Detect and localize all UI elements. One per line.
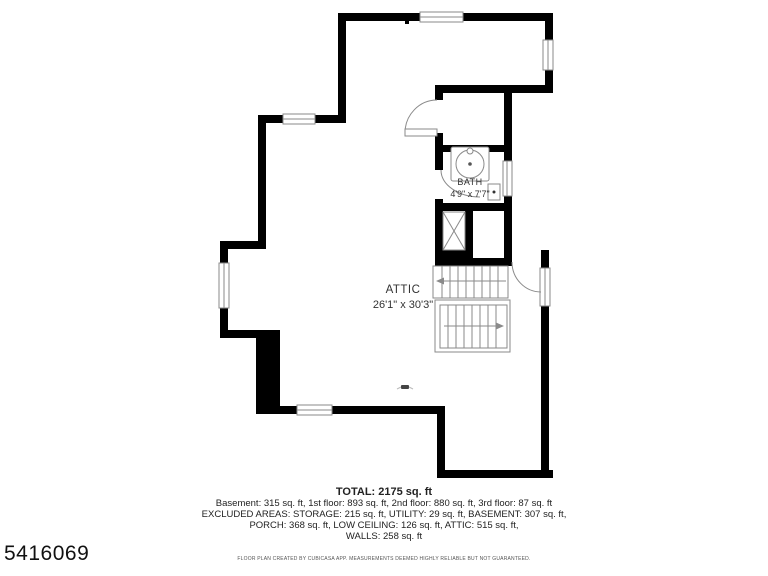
window-left	[219, 263, 229, 308]
wall-bottom	[437, 470, 553, 478]
wall-bottom-left	[256, 406, 445, 414]
window-top	[420, 12, 463, 22]
wall-left-mid	[258, 115, 266, 249]
closet-door	[405, 100, 437, 136]
disclaimer-text: FLOOR PLAN CREATED BY CUBICASA APP. MEAS…	[0, 556, 768, 562]
closet-door-gap	[435, 100, 443, 133]
staircase	[433, 266, 510, 352]
attic-room-label: ATTIC	[386, 284, 421, 296]
area-summary: TOTAL: 2175 sq. ft Basement: 315 sq. ft,…	[0, 486, 768, 542]
wall-left-upper	[338, 13, 346, 123]
light-fixture-icon	[397, 385, 413, 389]
stairs-lower-run	[435, 300, 510, 352]
bath-room-dimensions: 4'9" x 7'7"	[450, 189, 489, 199]
summary-line-porch: PORCH: 368 sq. ft, LOW CEILING: 126 sq. …	[0, 520, 768, 531]
window-right-upper	[543, 40, 553, 70]
window-right-lower	[540, 268, 550, 306]
summary-line-walls: WALLS: 258 sq. ft	[0, 531, 768, 542]
summary-line-floors: Basement: 315 sq. ft, 1st floor: 893 sq.…	[0, 498, 768, 509]
stairs-upper-run	[433, 266, 508, 298]
wall-tick-top	[405, 21, 409, 24]
attic-room-dimensions: 26'1" x 30'3"	[373, 299, 433, 311]
wall-below-storage	[435, 250, 473, 266]
stair-room-door	[512, 262, 541, 292]
bath-room-label: BATH	[457, 177, 482, 187]
total-area-label: TOTAL: 2175 sq. ft	[0, 486, 768, 498]
window-bath-right	[503, 161, 512, 196]
wall-bottom-mid-vertical	[437, 406, 445, 478]
window-bottom	[297, 405, 332, 415]
bath-small-door-marker	[488, 184, 500, 200]
listing-id: 5416069	[4, 542, 89, 566]
wall-thick-block	[256, 330, 280, 414]
summary-line-excluded: EXCLUDED AREAS: STORAGE: 215 sq. ft, UTI…	[0, 509, 768, 520]
window-top-left	[283, 114, 315, 124]
wall-mid-horizontal	[435, 85, 553, 93]
storage-x-area	[443, 212, 465, 250]
sink-icon	[451, 147, 489, 181]
wall-bath-bottom	[435, 203, 512, 211]
walls	[220, 13, 553, 478]
